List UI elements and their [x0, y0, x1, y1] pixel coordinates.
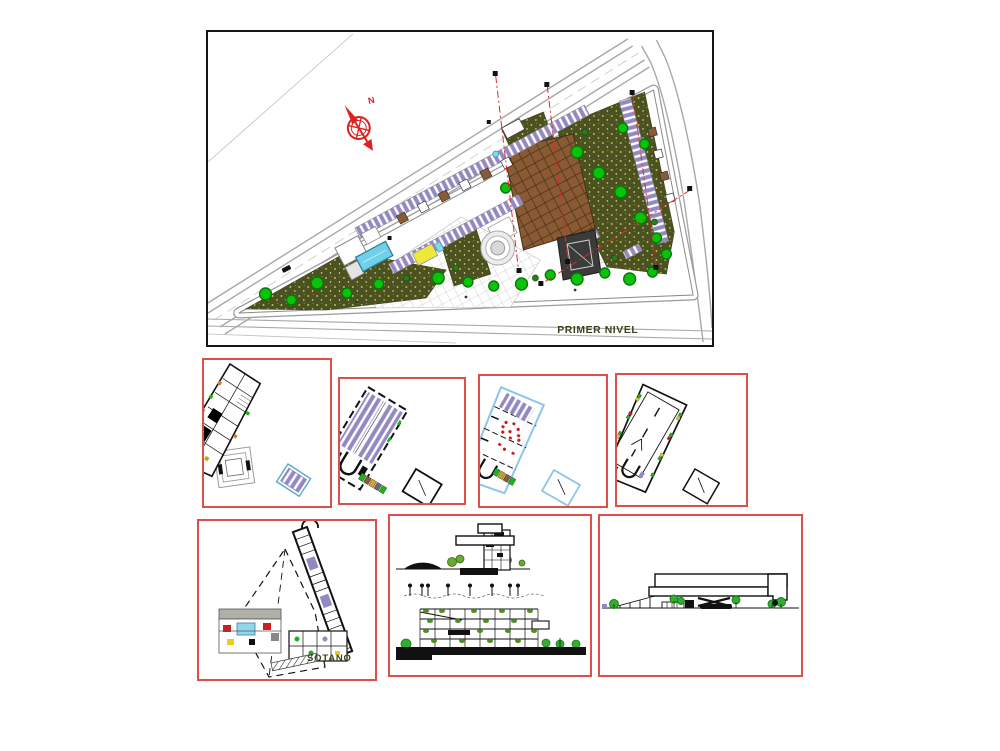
auditorium	[557, 230, 601, 280]
service-block	[219, 609, 281, 653]
elevation-section-drawing	[390, 516, 590, 675]
side-elevation-drawing	[600, 516, 801, 675]
drawing-sheet: N PRIMER NIVEL	[0, 0, 1000, 751]
parking-deck	[340, 387, 408, 490]
compass-icon	[335, 99, 382, 156]
trees	[610, 595, 786, 609]
entry-room	[683, 469, 719, 504]
elevation-section-panel	[388, 514, 592, 677]
entry-room	[542, 470, 580, 506]
building-section	[396, 609, 586, 660]
side-elevation-panel	[598, 514, 803, 677]
site-plan-drawing: N PRIMER NIVEL	[208, 32, 712, 345]
canopy-car	[698, 598, 732, 609]
floor-plan-3-panel	[478, 374, 608, 508]
floor-plan-4-panel	[615, 373, 748, 507]
north-label: N	[367, 95, 375, 106]
basement-plan-panel: SOTANO	[197, 519, 377, 681]
streetlight-row	[404, 584, 544, 599]
site-plan-panel: N PRIMER NIVEL	[206, 30, 714, 347]
site-plan-title: PRIMER NIVEL	[557, 325, 638, 336]
basement-title: SOTANO	[307, 653, 352, 664]
tree-trunks	[614, 601, 781, 608]
floor-plan-1-drawing	[204, 360, 330, 506]
sign-mark	[602, 604, 607, 608]
parking-plan-drawing	[340, 379, 464, 503]
building-outline	[649, 574, 787, 600]
main-wing	[204, 364, 269, 481]
parking-plan-panel	[338, 377, 466, 505]
dark-tree	[772, 600, 778, 606]
basement-plan-drawing: SOTANO	[199, 521, 375, 679]
level-plan	[480, 382, 552, 500]
upper-elevation	[396, 524, 530, 575]
annex-room	[277, 464, 311, 496]
floor-plan-3-drawing	[480, 376, 606, 506]
fountain	[493, 151, 499, 157]
entry-room	[403, 469, 442, 503]
floor-plan-4-drawing	[617, 375, 746, 505]
floor-plan-1-panel	[202, 358, 332, 508]
level-plan	[617, 381, 693, 497]
